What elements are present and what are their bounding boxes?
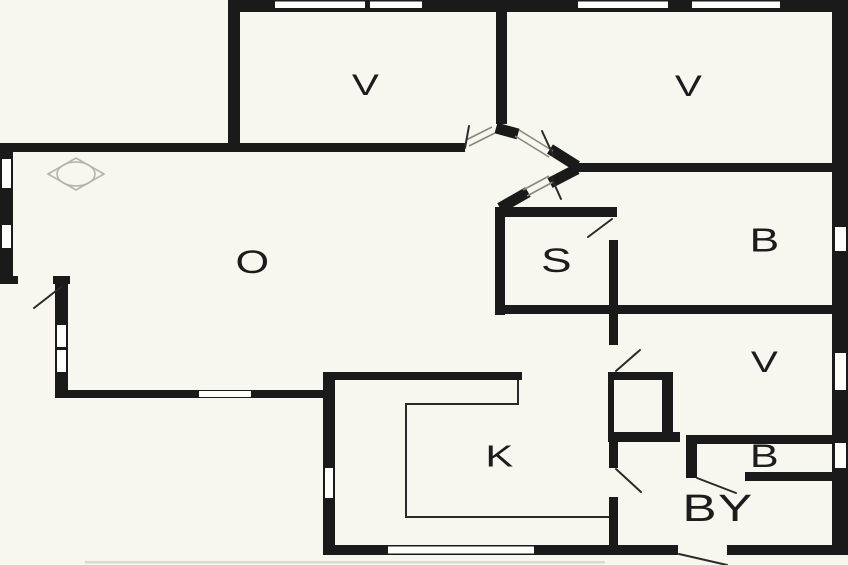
wall-mid-lower-by (609, 497, 618, 555)
wall-closet-bottom (608, 432, 680, 442)
door-leaf-v2 (542, 131, 553, 155)
opening-hall-a (523, 176, 549, 190)
floorplan-canvas: V V O S B V K B BY (0, 0, 848, 565)
wall-left-upper (228, 0, 240, 152)
door-leaf-utility (616, 469, 641, 492)
opening-v2-a (519, 130, 553, 151)
door-leaf-v1 (465, 126, 469, 148)
scan-artifact-line (85, 561, 605, 564)
room-label-kitchen: K (485, 441, 514, 472)
wall-s-right (609, 240, 618, 345)
room-label-bedroom-top-left: V (352, 71, 380, 101)
window-left-4 (57, 350, 66, 372)
wall-s-left (495, 207, 505, 315)
wall-v1-v2-divider (496, 0, 507, 124)
wall-closet-left (608, 372, 614, 433)
window-left-3 (57, 325, 66, 347)
lamp-icon (48, 158, 104, 190)
window-right-2 (835, 353, 846, 390)
wall-right (832, 0, 848, 555)
room-label-closet-room: S (541, 244, 573, 278)
wall-v2-bottom (574, 163, 848, 172)
room-label-living-room: O (236, 246, 271, 278)
room-label-bedroom-mid-right: V (751, 348, 779, 378)
opening-hall-b (527, 182, 553, 196)
wall-b-v-divider (495, 305, 848, 314)
door-gap-kitchen-utility (608, 468, 619, 497)
wall-wedge-lower (550, 169, 577, 183)
window-left-1 (2, 159, 11, 188)
wall-angled-to-s (500, 192, 528, 208)
wall-mid-upper-by (609, 432, 618, 468)
window-top-1 (275, 2, 365, 9)
window-bottom (388, 547, 534, 554)
door-gap-entry (18, 275, 53, 285)
opening-v2-b (515, 136, 549, 157)
wall-living-top (0, 143, 465, 152)
room-label-bedroom-top-right: V (675, 72, 703, 102)
room-label-bathroom: B (750, 440, 780, 472)
windows (2, 2, 846, 554)
wall-bathroom-left (686, 435, 697, 478)
window-left-2 (2, 225, 11, 248)
door-gap-utility-exit (678, 544, 727, 556)
room-label-utility-room: BY (682, 490, 753, 528)
door-leaves (34, 126, 736, 565)
wall-s-top (495, 207, 617, 217)
wall-angled-stub (496, 128, 518, 134)
window-kitchen-left (325, 468, 333, 498)
window-right-1 (835, 227, 846, 251)
door-gap-v-mid (608, 345, 619, 372)
door-gaps (18, 218, 745, 556)
wall-living-bottom (55, 390, 328, 398)
wall-closet-right (662, 372, 673, 433)
opening-v1-a (466, 127, 492, 140)
opening-v1-b (469, 133, 495, 146)
window-top-4 (692, 2, 780, 9)
window-top-2 (370, 2, 422, 9)
window-right-3 (835, 443, 846, 468)
wall-kitchen-left (323, 372, 335, 555)
door-leaf-v-mid (616, 350, 640, 371)
wall-kitchen-top (323, 372, 522, 380)
floorplan-drawing (0, 0, 848, 565)
wall-wedge-upper (550, 149, 577, 166)
room-label-bedroom-right: B (749, 224, 780, 257)
window-top-3 (578, 2, 668, 9)
window-living-bottom (199, 391, 251, 397)
lamp-ellipse (57, 162, 95, 186)
